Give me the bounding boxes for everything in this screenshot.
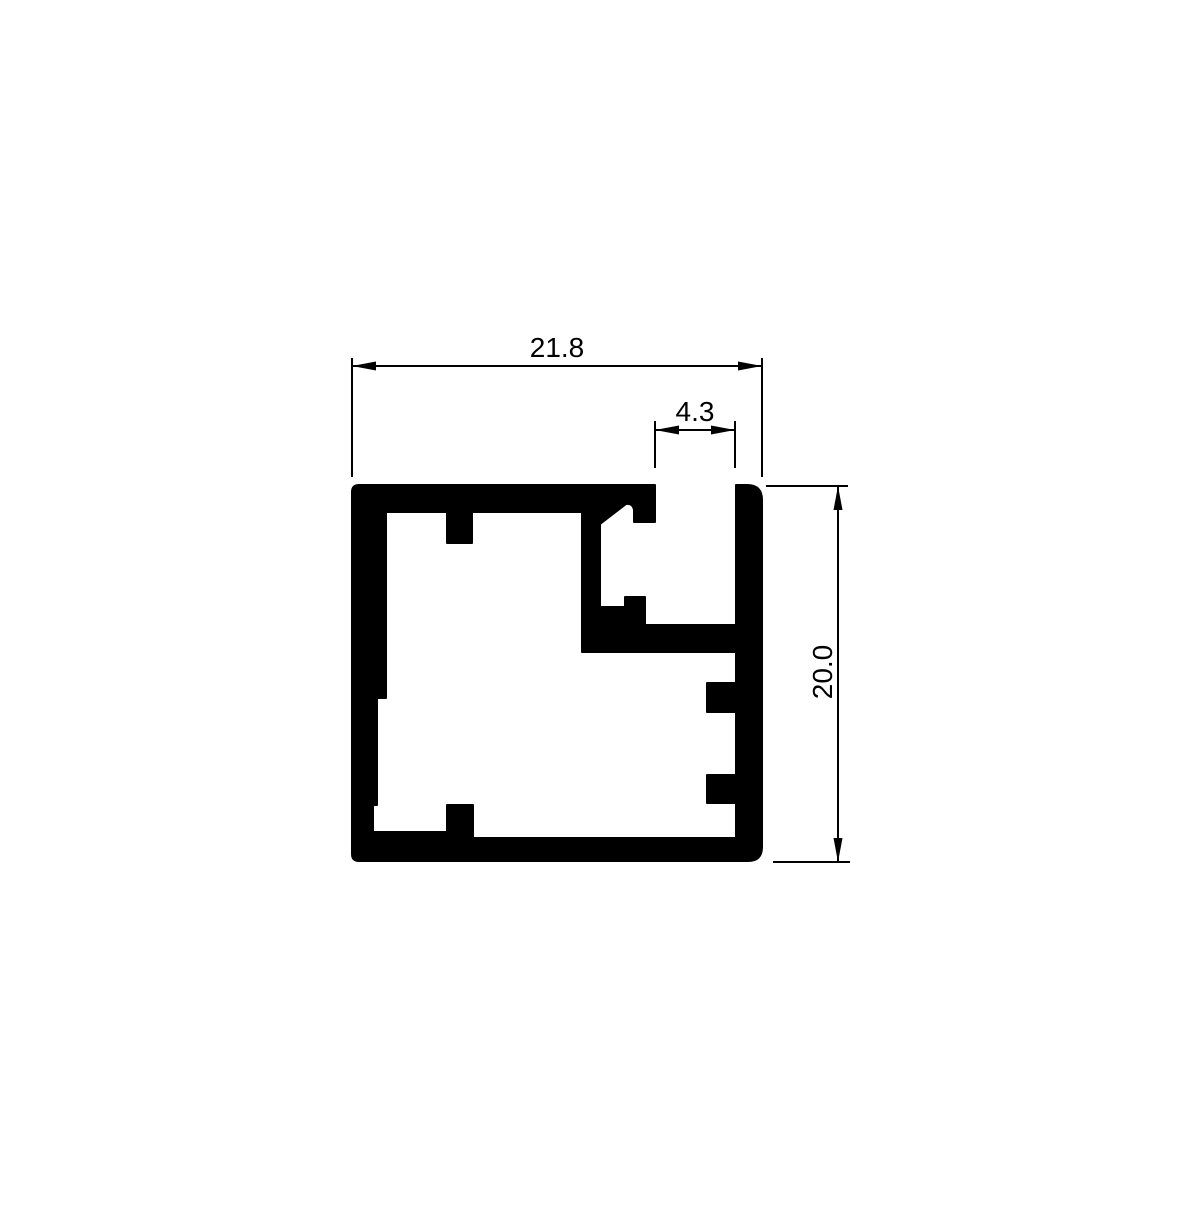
dimension-overall-height-label: 20.0 [807,645,838,700]
arrowhead-top-icon [834,486,843,510]
dimension-overall-height: 20.0 [766,486,850,862]
technical-drawing: 21.8 4.3 20.0 [0,0,1200,1200]
arrowhead-right-icon [711,426,735,435]
technical-drawing-canvas: 21.8 4.3 20.0 [0,0,1200,1200]
dimension-overall-width-label: 21.8 [530,332,585,363]
arrowhead-bottom-icon [834,838,843,862]
arrowhead-right-icon [738,362,762,371]
arrowhead-left-icon [352,362,376,371]
dimension-slot-opening: 4.3 [655,396,735,468]
profile-cross-section [352,485,762,861]
dimension-slot-opening-label: 4.3 [676,396,715,427]
